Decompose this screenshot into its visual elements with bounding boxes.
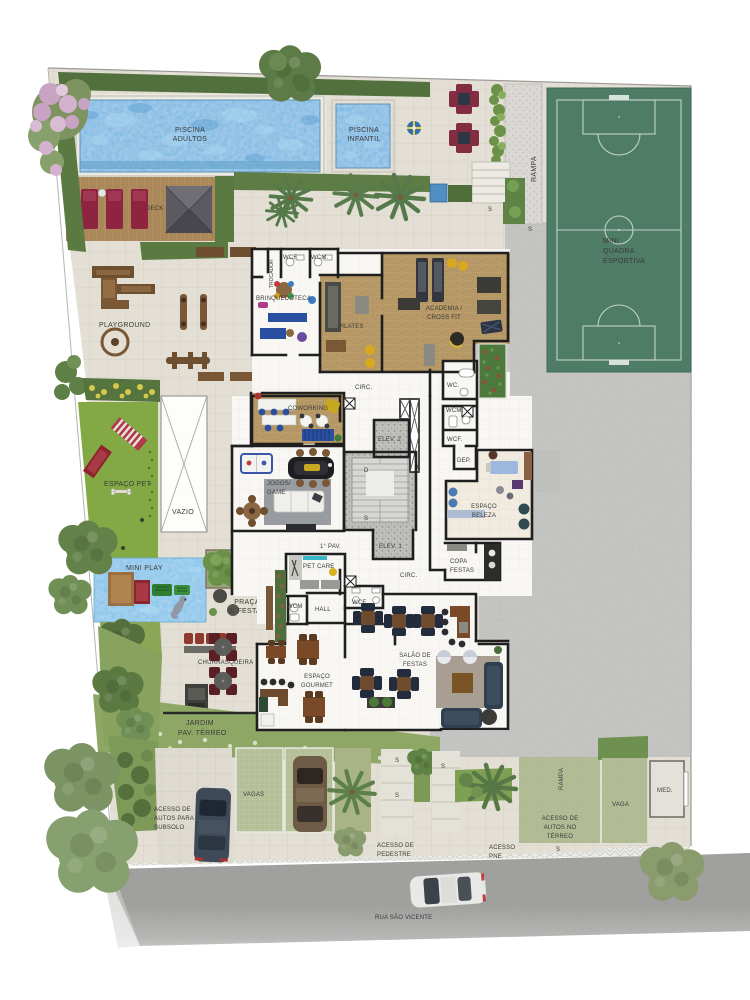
svg-text:QUADRA: QUADRA [603, 248, 635, 255]
svg-text:CIRC.: CIRC. [355, 385, 372, 391]
svg-text:PAV. TÉRREO: PAV. TÉRREO [178, 728, 227, 737]
svg-text:CIRC.: CIRC. [400, 573, 417, 579]
svg-text:ACESSO: ACESSO [489, 845, 515, 851]
svg-text:WCM.: WCM. [311, 255, 329, 261]
svg-text:1° PAV.: 1° PAV. [320, 544, 341, 550]
svg-text:ELEV. 1: ELEV. 1 [379, 544, 402, 550]
svg-text:JARDIM: JARDIM [186, 720, 214, 727]
svg-text:COWORKING: COWORKING [288, 406, 328, 412]
svg-text:S: S [528, 227, 532, 233]
svg-text:S: S [395, 758, 399, 764]
svg-text:S: S [395, 793, 399, 799]
svg-text:RAMPA: RAMPA [559, 768, 565, 790]
svg-text:WCF.: WCF. [283, 255, 299, 261]
svg-text:MED.: MED. [657, 788, 673, 794]
svg-text:S: S [441, 764, 445, 770]
svg-text:AUTOS PARA: AUTOS PARA [154, 816, 194, 822]
svg-text:DEP.: DEP. [457, 458, 471, 464]
svg-text:RAMPA: RAMPA [531, 156, 538, 182]
svg-text:ESPAÇO: ESPAÇO [304, 674, 330, 680]
svg-text:ESPORTIVA: ESPORTIVA [603, 258, 645, 265]
svg-text:ACADEMIA /: ACADEMIA / [426, 306, 462, 312]
svg-text:SUBSOLO: SUBSOLO [154, 825, 185, 831]
svg-text:SALÃO DE: SALÃO DE [399, 652, 431, 659]
svg-text:VAGAS: VAGAS [243, 792, 264, 798]
svg-text:PNE: PNE [489, 854, 502, 860]
svg-text:JOGOS/: JOGOS/ [267, 481, 291, 487]
svg-text:WC.: WC. [447, 383, 459, 389]
svg-text:DECK: DECK [146, 206, 163, 212]
svg-text:BRINQUEDOTECA: BRINQUEDOTECA [256, 296, 311, 302]
svg-text:COPA: COPA [450, 559, 467, 565]
svg-text:INFANTIL: INFANTIL [347, 136, 380, 143]
svg-text:CROSS FIT: CROSS FIT [427, 315, 461, 321]
svg-text:S: S [364, 516, 368, 522]
svg-text:GAME: GAME [267, 490, 285, 496]
svg-text:VAZIO: VAZIO [172, 509, 194, 516]
svg-text:PRAÇA: PRAÇA [234, 599, 260, 606]
svg-text:PLAYGROUND: PLAYGROUND [99, 322, 151, 329]
svg-text:PILATES: PILATES [338, 324, 364, 330]
svg-text:WCM.: WCM. [446, 408, 464, 414]
svg-text:WCF.: WCF. [447, 437, 463, 443]
svg-text:WCM: WCM [287, 604, 303, 610]
svg-text:FESTAS: FESTAS [403, 662, 427, 668]
svg-text:AUTOS NO: AUTOS NO [544, 825, 577, 831]
svg-text:MINI PLAY: MINI PLAY [126, 565, 163, 572]
svg-text:GOURMET: GOURMET [301, 683, 333, 689]
svg-text:VAGA: VAGA [612, 802, 629, 808]
svg-text:D: D [364, 468, 369, 474]
svg-text:S: S [488, 207, 492, 213]
svg-text:PISCINA: PISCINA [175, 127, 205, 134]
svg-text:ADULTOS: ADULTOS [173, 136, 208, 143]
svg-text:CHURRASQUEIRA: CHURRASQUEIRA [198, 660, 253, 666]
svg-text:TÉRREO: TÉRREO [547, 833, 573, 840]
svg-text:ESPAÇO: ESPAÇO [471, 504, 497, 510]
svg-text:RUA SÃO VICENTE: RUA SÃO VICENTE [375, 914, 432, 921]
svg-text:ACESSO DE: ACESSO DE [154, 807, 191, 813]
svg-text:ACESSO DE: ACESSO DE [542, 816, 579, 822]
svg-text:PET CARE: PET CARE [303, 564, 335, 570]
svg-text:ACESSO DE: ACESSO DE [377, 843, 414, 849]
svg-text:S: S [556, 847, 560, 853]
svg-text:FESTAS: FESTAS [450, 568, 474, 574]
svg-text:PISCINA: PISCINA [349, 127, 379, 134]
svg-text:HALL: HALL [315, 607, 331, 613]
svg-text:ELEV. 2: ELEV. 2 [378, 437, 401, 443]
svg-text:MINI: MINI [603, 238, 619, 245]
svg-text:ESPAÇO PET: ESPAÇO PET [104, 481, 152, 488]
svg-text:BELEZA: BELEZA [472, 513, 496, 519]
svg-text:PEDESTRE: PEDESTRE [377, 852, 411, 858]
